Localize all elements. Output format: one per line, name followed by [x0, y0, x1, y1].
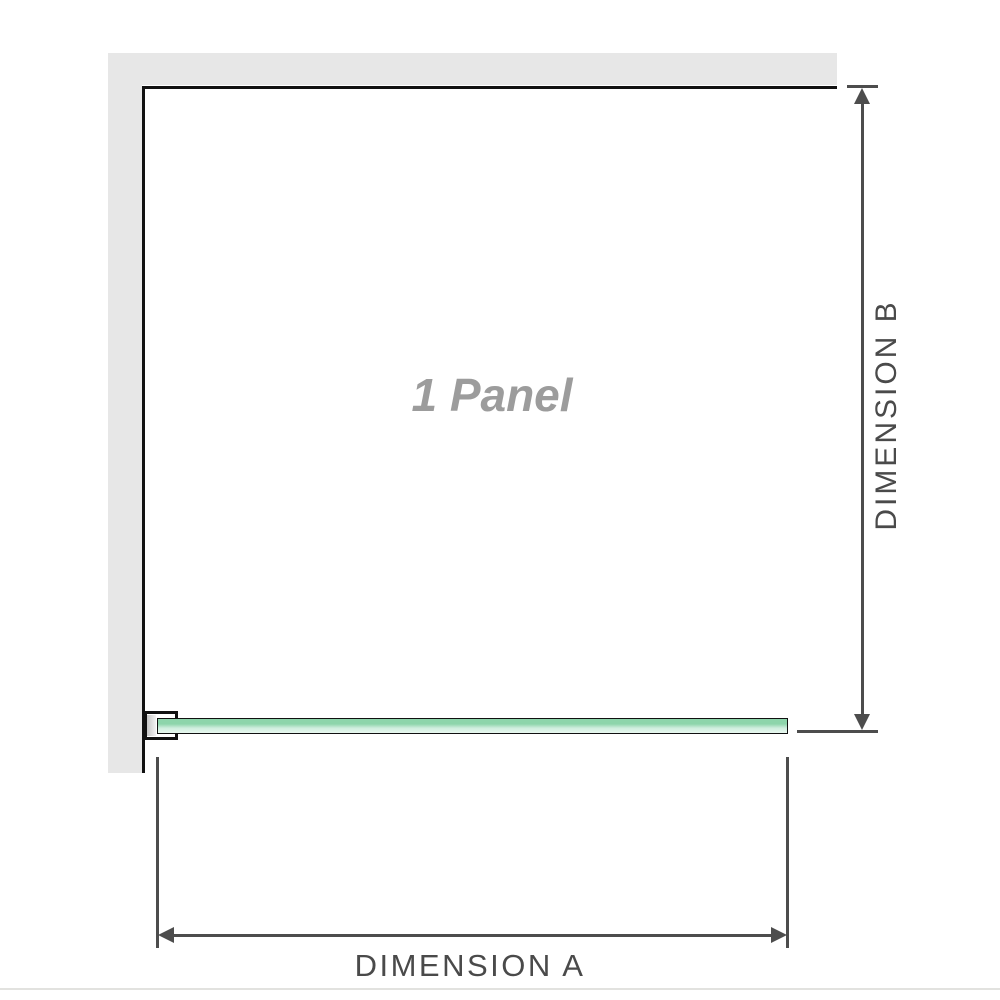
arrow-left-icon [158, 927, 174, 943]
dimension-a-line [164, 934, 781, 937]
panel-left-edge [142, 86, 145, 773]
arrow-right-icon [771, 927, 787, 943]
panel-count-label: 1 Panel [142, 368, 842, 422]
glass-panel [157, 718, 788, 734]
dimension-b-bottom-cap [797, 730, 878, 733]
dimension-a-right-extension [786, 757, 789, 948]
dimension-b-label: DIMENSION B [870, 299, 904, 530]
dimension-a-left-extension [156, 757, 159, 948]
panel-configuration-diagram: 1 Panel DIMENSION B DIMENSION A [0, 0, 1000, 1000]
wall-left-section [108, 53, 142, 773]
bottom-divider [0, 988, 1000, 990]
wall-bracket-plate [147, 715, 156, 736]
wall-top-section [108, 53, 837, 85]
arrow-up-icon [854, 88, 870, 104]
arrow-down-icon [854, 714, 870, 730]
dimension-a-label: DIMENSION A [150, 948, 790, 984]
panel-top-edge [142, 86, 837, 89]
dimension-b-line [861, 92, 864, 726]
